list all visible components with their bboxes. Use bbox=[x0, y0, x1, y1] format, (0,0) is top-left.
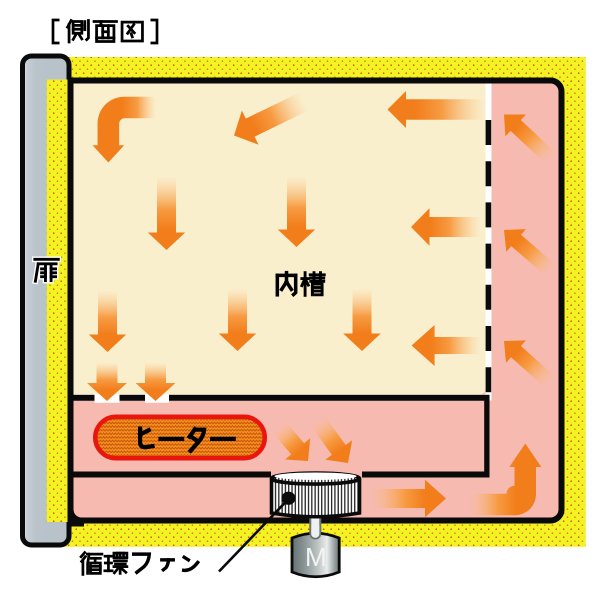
svg-text:M: M bbox=[305, 542, 327, 572]
